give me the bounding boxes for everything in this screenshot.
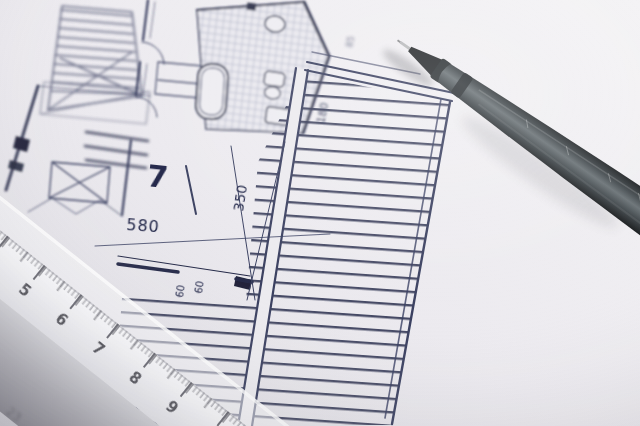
photo-scene: 7 580 350 180 85 60 60	[0, 0, 640, 426]
scene-canvas: 7 580 350 180 85 60 60	[0, 0, 640, 426]
dimension-60-left: 60	[174, 284, 187, 298]
dimension-60-right: 60	[193, 280, 206, 294]
room-number-label: 7	[145, 158, 169, 195]
dimension-580: 580	[126, 215, 161, 236]
door-threshold	[246, 2, 256, 10]
bathtub	[195, 63, 229, 120]
